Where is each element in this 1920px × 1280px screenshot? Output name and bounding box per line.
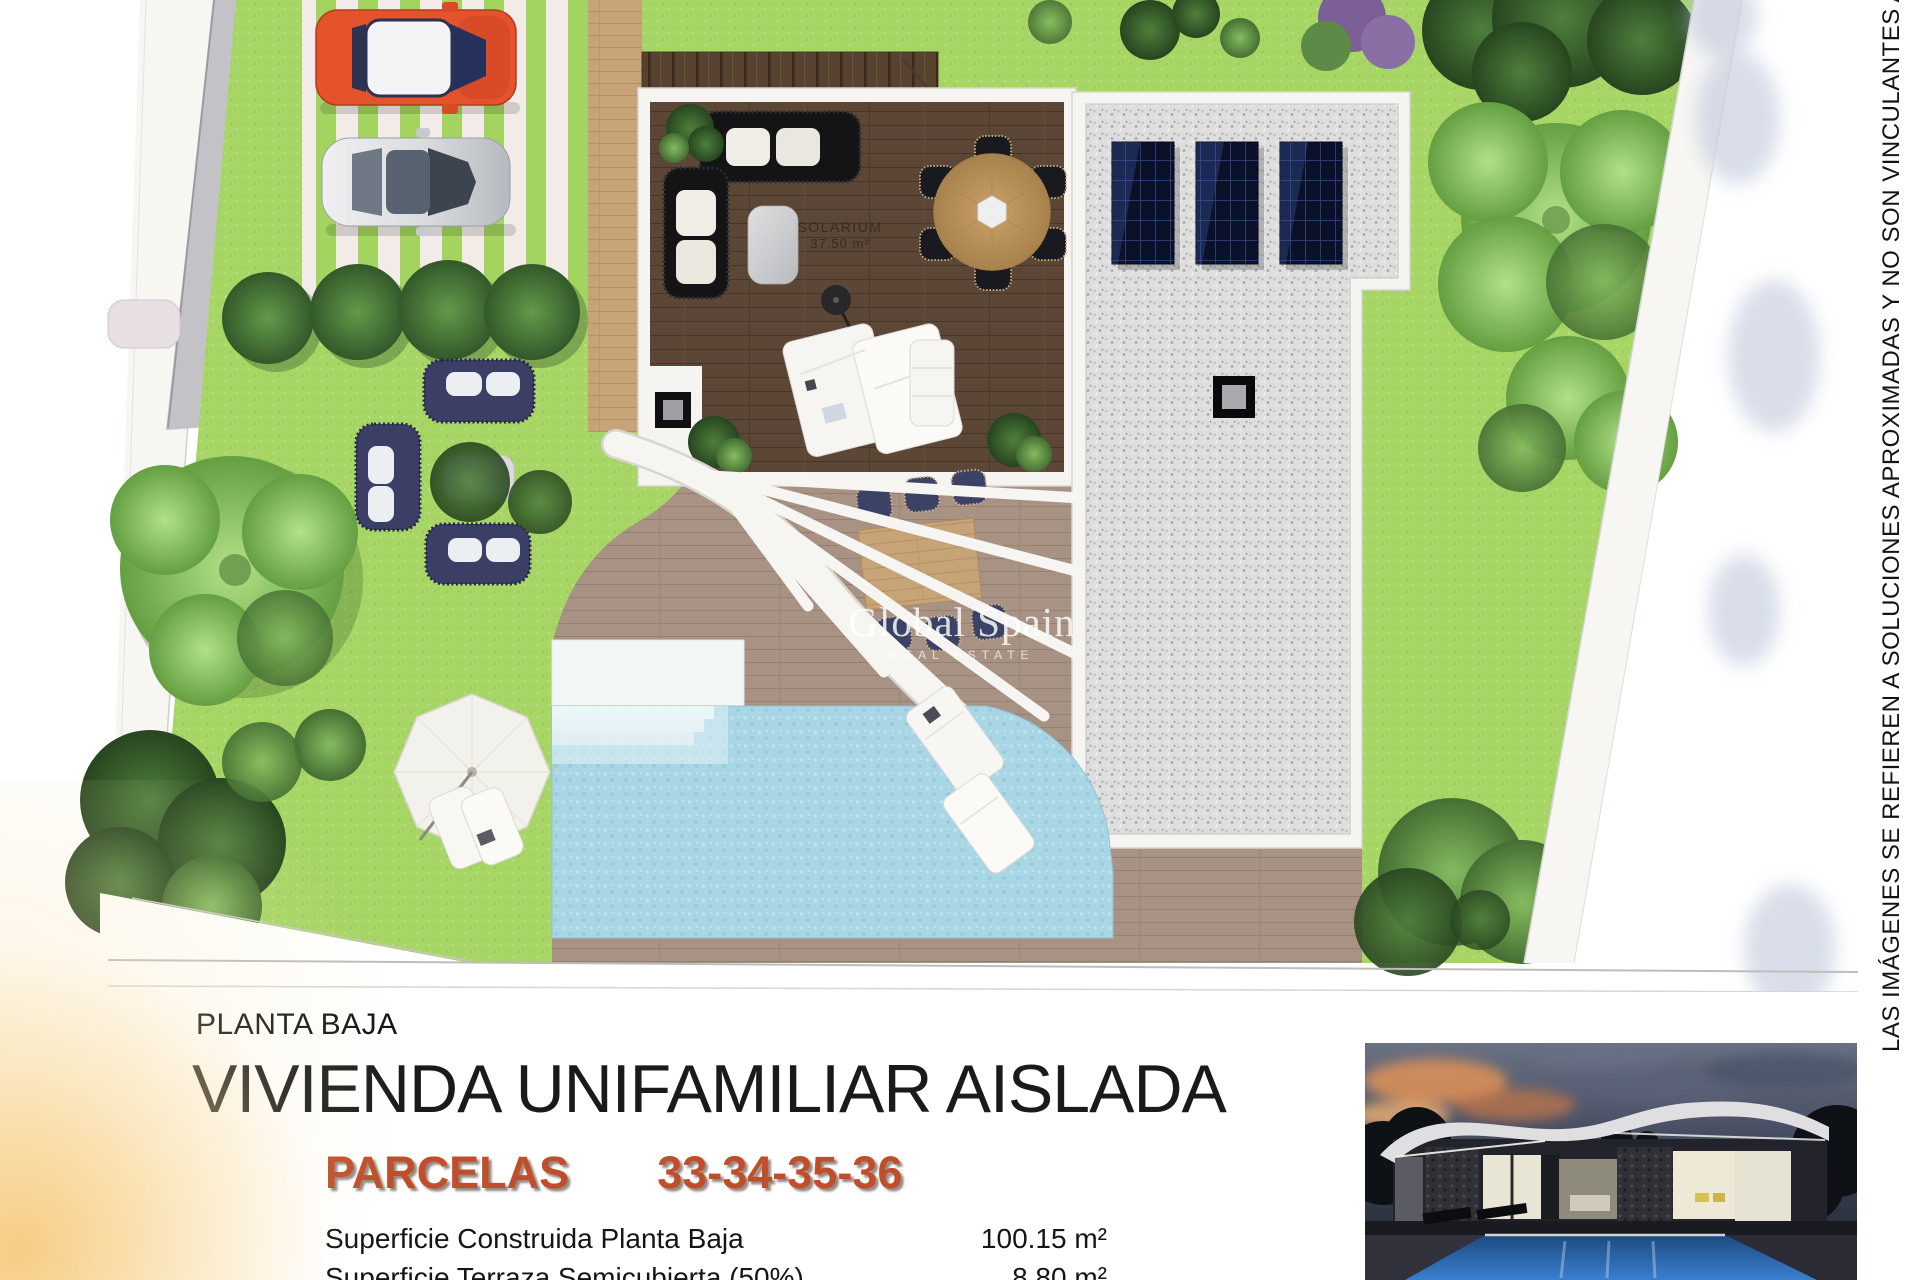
solar-panels [1112, 142, 1348, 270]
site-plan: SOLARIUM 37.50 m² Global Spain REAL ESTA… [0, 0, 1920, 992]
pool-foreground [1365, 1235, 1857, 1280]
spec-row: Superficie Terraza Semicubierta (50%) 8.… [325, 1262, 1107, 1280]
villa-night-photo [1365, 1043, 1857, 1280]
surface-specs: Superficie Construida Planta Baja 100.15… [325, 1223, 1107, 1280]
villa-photo-drawing [1365, 1043, 1857, 1280]
spec-label: Superficie Construida Planta Baja [325, 1223, 937, 1255]
page-title: VIVIENDA UNIFAMILIAR AISLADA [192, 1050, 1226, 1128]
parcels-label: PARCELAS [325, 1147, 569, 1198]
cloud-shadows [1686, 0, 1836, 992]
parcels-line: PARCELAS33-34-35-36 [325, 1147, 902, 1199]
pool-steps [552, 706, 714, 745]
disclaimer-text: LAS IMÁGENES SE REFIEREN A SOLUCIONES AP… [1878, 0, 1906, 1052]
orange-car [316, 2, 520, 114]
entry-walkway [588, 0, 642, 432]
spec-row: Superficie Construida Planta Baja 100.15… [325, 1223, 1107, 1255]
roof-skylight [1213, 376, 1255, 418]
parcels-numbers: 33-34-35-36 [657, 1147, 902, 1198]
silver-car [322, 128, 516, 236]
site-plan-drawing [0, 0, 1920, 992]
spec-label: Superficie Terraza Semicubierta (50%) [325, 1262, 937, 1280]
spec-value: 8.80 m² [937, 1262, 1107, 1280]
floor-label: PLANTA BAJA [196, 1008, 398, 1042]
garden-ottoman [108, 300, 180, 348]
plan-sheet: SOLARIUM 37.50 m² Global Spain REAL ESTA… [0, 0, 1920, 1280]
solarium-rug [748, 206, 798, 284]
spec-value: 100.15 m² [937, 1223, 1107, 1255]
